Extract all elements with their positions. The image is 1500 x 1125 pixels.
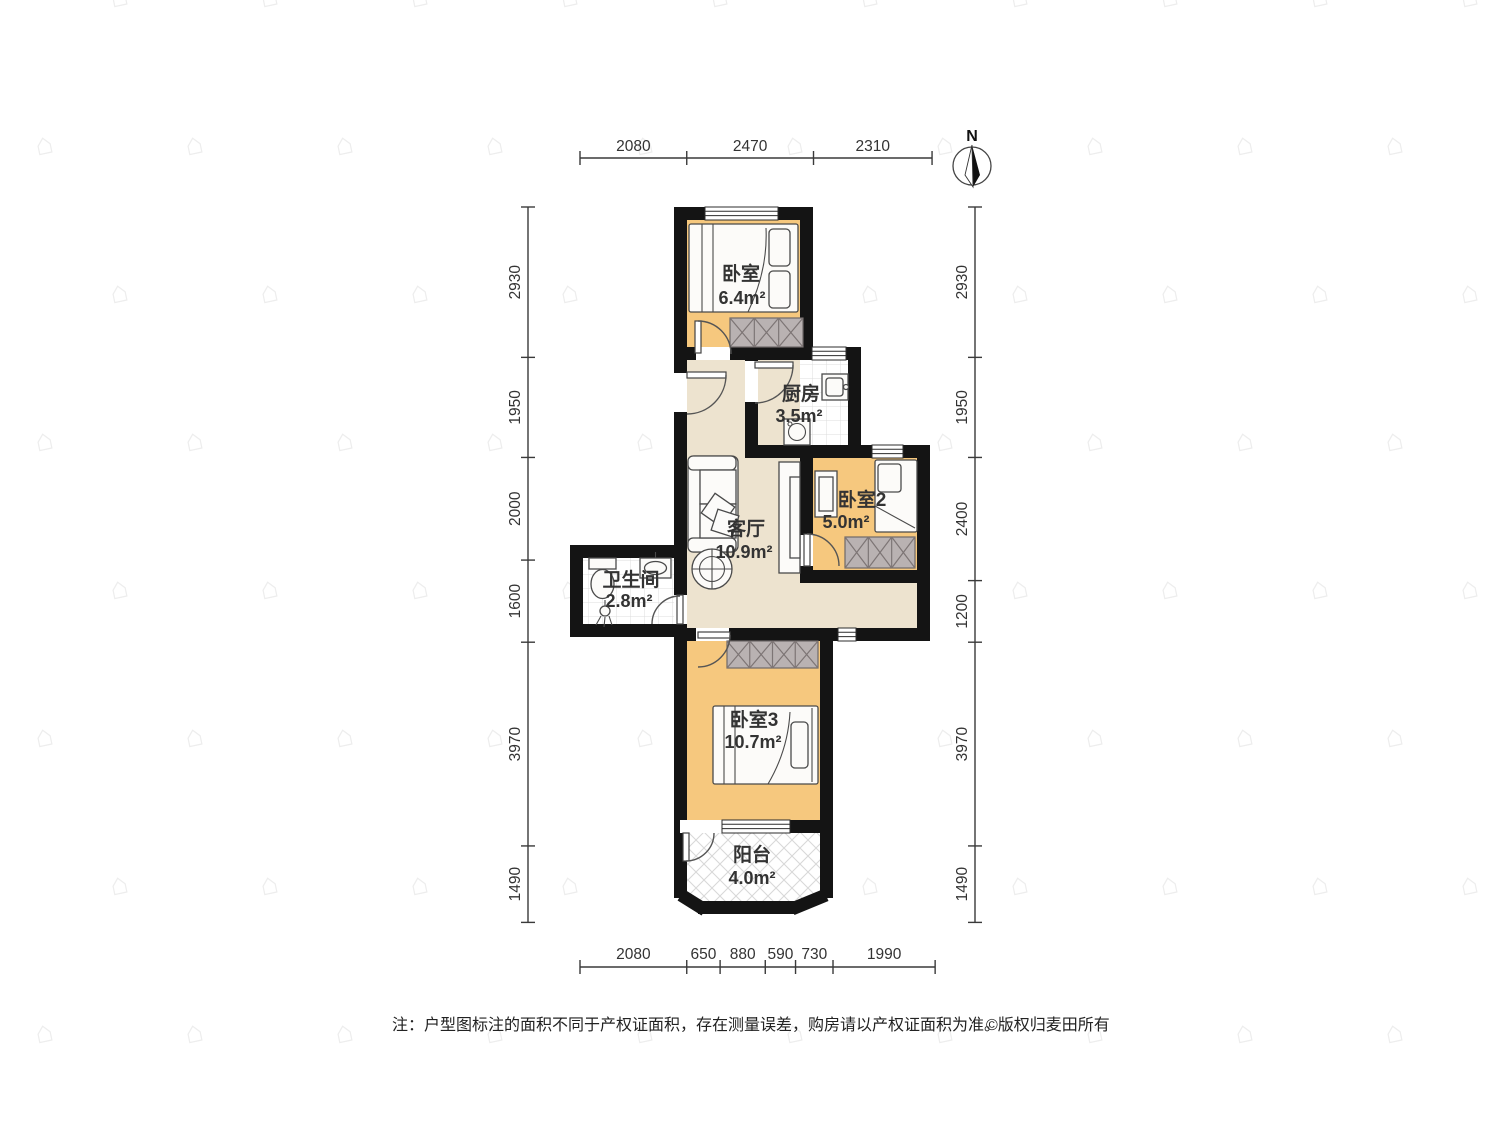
bedroom2-desk <box>815 471 837 517</box>
living-room-area: 10.9m² <box>715 542 772 562</box>
tv-cabinet <box>779 462 800 573</box>
dim-label-bottom-4: 730 <box>801 946 827 963</box>
kitchen-window <box>812 347 846 360</box>
dim-label-right-5: 1490 <box>954 867 971 902</box>
bedroom2-window <box>872 445 903 458</box>
dim-label-left-3: 1600 <box>507 584 524 619</box>
disclaimer-text: 注：户型图标注的面积不同于产权证面积，存在测量误差，购房请以产权证面积为准。 <box>392 1016 1000 1034</box>
bedroom1-area: 6.4m² <box>718 288 765 308</box>
wardrobe <box>845 537 915 568</box>
living-room-label: 客厅 <box>727 517 765 540</box>
footer-note: 注：户型图标注的面积不同于产权证面积，存在测量误差，购房请以产权证面积为准。 ©… <box>392 1016 1110 1034</box>
bedroom1-label: 卧室 <box>722 262 760 285</box>
copyright-text: ©版权归麦田所有 <box>986 1016 1110 1034</box>
compass-north-label: N <box>966 128 978 145</box>
dim-label-left-2: 2000 <box>507 491 524 526</box>
bedroom1-window <box>705 207 778 220</box>
hall-window <box>838 628 856 641</box>
dim-label-left-4: 3970 <box>507 726 524 761</box>
balcony-area: 4.0m² <box>728 868 775 888</box>
bathroom-area: 2.8m² <box>605 591 652 611</box>
hall-extension-floor <box>800 583 917 628</box>
dim-label-right-1: 1950 <box>954 390 971 425</box>
kitchen-label: 厨房 <box>782 382 820 405</box>
wardrobe <box>730 318 803 347</box>
balcony-label: 阳台 <box>733 843 771 866</box>
dim-label-right-3: 1200 <box>954 594 971 629</box>
kitchen-sink <box>822 374 849 400</box>
bathroom-label: 卫生间 <box>602 568 659 591</box>
dim-label-bottom-2: 880 <box>730 946 756 963</box>
dim-label-bottom-0: 2080 <box>616 946 651 963</box>
compass-needle-light <box>965 145 973 187</box>
dim-label-left-0: 2930 <box>507 265 524 300</box>
floorplan-svg: 卧室 6.4m² 厨房 3.5m² 卧室2 5.0m² 客厅 10.9m² 卫生… <box>0 0 1500 1125</box>
compass: N <box>953 128 991 187</box>
bedroom3-area: 10.7m² <box>724 732 781 752</box>
kitchen-area: 3.5m² <box>775 406 822 426</box>
dim-label-top-0: 2080 <box>616 138 651 155</box>
dim-label-left-5: 1490 <box>507 867 524 902</box>
dim-label-right-0: 2930 <box>954 265 971 300</box>
dim-label-left-1: 1950 <box>507 390 524 425</box>
bedroom3-label: 卧室3 <box>730 708 779 731</box>
dim-label-right-4: 3970 <box>954 726 971 761</box>
bedroom2-label: 卧室2 <box>838 488 887 511</box>
dim-label-bottom-1: 650 <box>690 946 716 963</box>
wardrobe <box>727 641 818 668</box>
dim-label-bottom-3: 590 <box>767 946 793 963</box>
dim-label-top-1: 2470 <box>733 138 768 155</box>
dim-label-bottom-5: 1990 <box>867 946 902 963</box>
bedroom2-area: 5.0m² <box>822 512 869 532</box>
bedroom3-balcony-window <box>722 820 790 833</box>
dim-label-top-2: 2310 <box>856 138 891 155</box>
floorplan-canvas: ⌂⌂⌂⌂⌂⌂⌂⌂⌂⌂⌂⌂⌂⌂⌂⌂⌂⌂⌂⌂⌂⌂⌂⌂⌂⌂⌂⌂⌂⌂⌂⌂⌂⌂⌂⌂⌂⌂⌂⌂… <box>0 0 1500 1125</box>
dim-label-right-2: 2400 <box>954 501 971 536</box>
